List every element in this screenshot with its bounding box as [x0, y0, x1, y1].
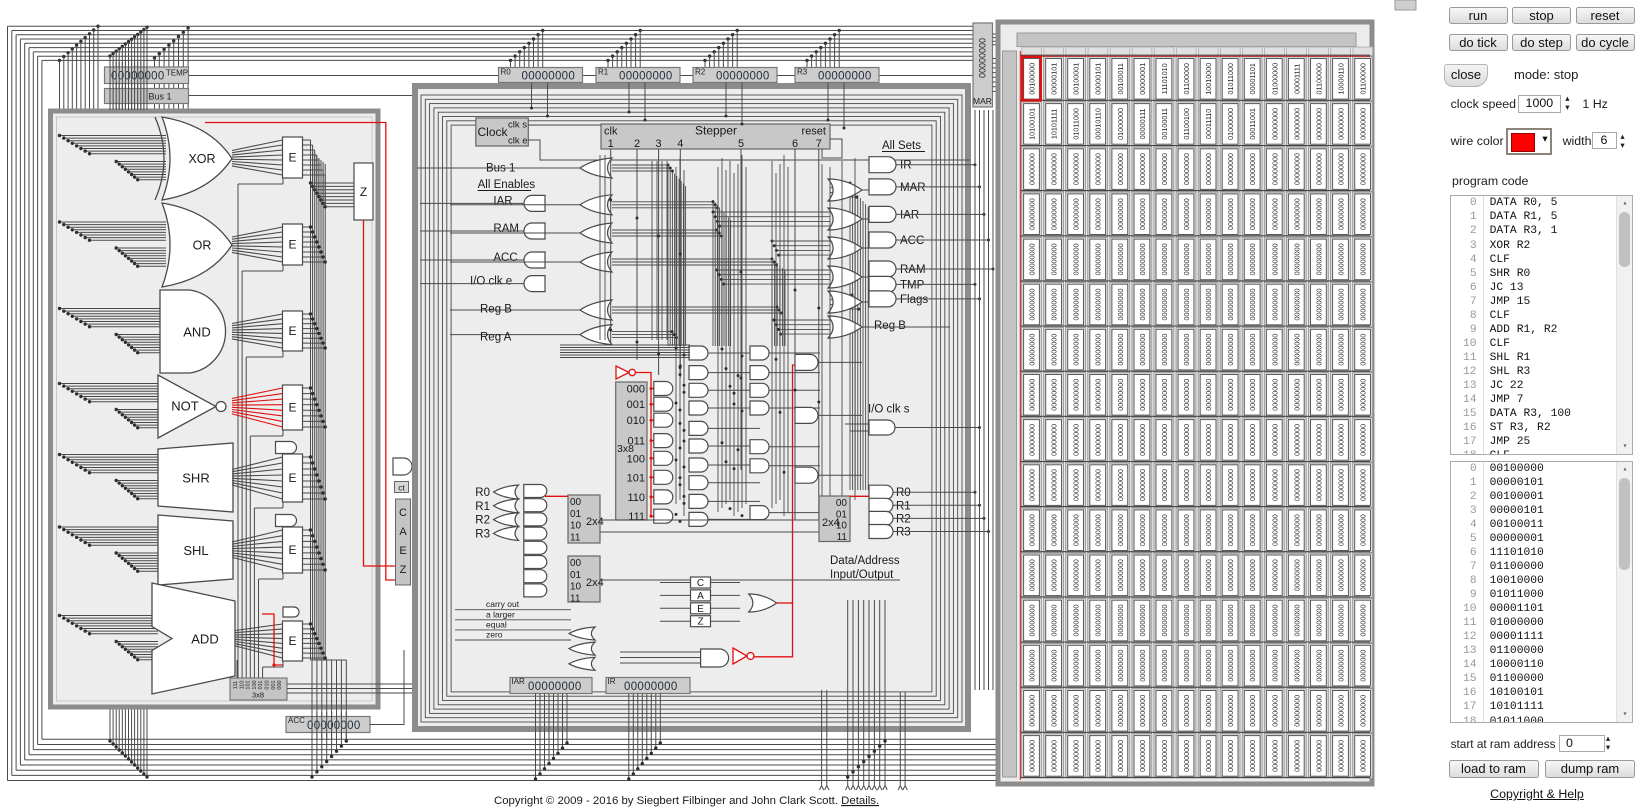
svg-text:00000000: 00000000 — [1160, 153, 1169, 185]
svg-text:Z: Z — [697, 617, 703, 628]
svg-text:00000000: 00000000 — [1160, 379, 1169, 411]
svg-text:00000000: 00000000 — [1314, 243, 1323, 275]
svg-text:00000000: 00000000 — [1094, 379, 1103, 411]
svg-text:00000000: 00000000 — [1204, 243, 1213, 275]
svg-text:00000000: 00000000 — [1314, 514, 1323, 546]
svg-text:00000000: 00000000 — [1050, 514, 1059, 546]
svg-text:00000000: 00000000 — [1248, 514, 1257, 546]
svg-text:00000000: 00000000 — [1138, 289, 1147, 321]
svg-text:00000000: 00000000 — [1226, 605, 1235, 637]
svg-text:00000000: 00000000 — [1028, 153, 1037, 185]
svg-text:10000110: 10000110 — [1337, 63, 1346, 94]
svg-text:00000000: 00000000 — [1072, 605, 1081, 637]
svg-text:00000000: 00000000 — [1204, 605, 1213, 637]
svg-text:ADD: ADD — [191, 632, 218, 647]
svg-text:00000000: 00000000 — [1226, 695, 1235, 727]
svg-text:00000000: 00000000 — [1292, 605, 1301, 637]
svg-text:00000000: 00000000 — [1094, 243, 1103, 275]
svg-text:00: 00 — [570, 558, 582, 569]
svg-text:00000000: 00000000 — [1116, 650, 1125, 682]
svg-text:00000000: 00000000 — [1292, 289, 1301, 321]
svg-text:00000000: 00000000 — [1337, 469, 1346, 501]
svg-text:Reg A: Reg A — [480, 332, 512, 344]
svg-text:00000000: 00000000 — [1337, 198, 1346, 230]
svg-text:00000000: 00000000 — [1116, 153, 1125, 185]
svg-text:R3: R3 — [475, 528, 490, 540]
svg-text:00000000: 00000000 — [1160, 243, 1169, 275]
svg-text:00000000: 00000000 — [1314, 740, 1323, 772]
svg-text:00000000: 00000000 — [1050, 559, 1059, 591]
svg-text:00000000: 00000000 — [1204, 559, 1213, 591]
svg-text:00000000: 00000000 — [1314, 695, 1323, 727]
svg-text:MAR: MAR — [900, 182, 926, 194]
svg-text:101: 101 — [246, 680, 252, 689]
svg-text:R2: R2 — [475, 515, 490, 527]
svg-text:00000000: 00000000 — [1226, 559, 1235, 591]
svg-text:00000000: 00000000 — [1182, 379, 1191, 411]
svg-text:00000000: 00000000 — [1116, 424, 1125, 456]
svg-text:00000000: 00000000 — [1116, 198, 1125, 230]
svg-text:I/O clk e: I/O clk e — [470, 276, 512, 288]
svg-text:Flags: Flags — [900, 294, 928, 306]
svg-text:01011000: 01011000 — [1072, 108, 1081, 139]
svg-text:TMP: TMP — [900, 279, 925, 291]
svg-text:00000000: 00000000 — [1182, 198, 1191, 230]
svg-text:001: 001 — [271, 680, 277, 689]
svg-text:00000000: 00000000 — [1226, 198, 1235, 230]
svg-text:100: 100 — [252, 680, 258, 689]
svg-text:00000000: 00000000 — [1292, 334, 1301, 366]
svg-text:00000000: 00000000 — [1337, 334, 1346, 366]
svg-text:00000000: 00000000 — [1028, 334, 1037, 366]
svg-text:MAR: MAR — [973, 96, 992, 106]
svg-text:10010000: 10010000 — [1204, 63, 1213, 95]
svg-text:00000000: 00000000 — [1050, 153, 1059, 185]
svg-text:00000000: 00000000 — [1314, 153, 1323, 185]
svg-text:IAR: IAR — [900, 209, 919, 221]
svg-text:00000000: 00000000 — [1337, 243, 1346, 275]
svg-text:10: 10 — [570, 582, 582, 593]
svg-text:00000000: 00000000 — [1314, 334, 1323, 366]
svg-text:00000000: 00000000 — [1314, 469, 1323, 501]
svg-text:00000000: 00000000 — [1226, 243, 1235, 275]
svg-text:00000000: 00000000 — [1359, 740, 1368, 772]
svg-text:00000000: 00000000 — [1028, 650, 1037, 682]
svg-text:00000000: 00000000 — [1226, 424, 1235, 456]
svg-text:R2: R2 — [896, 513, 911, 525]
svg-text:I/O clk s: I/O clk s — [868, 404, 910, 416]
svg-text:E: E — [288, 543, 296, 557]
svg-text:01000000: 01000000 — [1116, 108, 1125, 140]
svg-text:4: 4 — [677, 138, 683, 150]
svg-text:00000000: 00000000 — [1160, 198, 1169, 230]
svg-text:Bus 1: Bus 1 — [148, 92, 171, 102]
svg-text:00000000: 00000000 — [1050, 650, 1059, 682]
svg-text:00000000: 00000000 — [1359, 334, 1368, 366]
svg-text:00000000: 00000000 — [1226, 153, 1235, 185]
svg-text:01000000: 01000000 — [1270, 63, 1279, 95]
svg-text:00000000: 00000000 — [1028, 243, 1037, 275]
svg-text:OR: OR — [193, 239, 212, 253]
svg-text:All Sets: All Sets — [882, 140, 921, 152]
svg-text:All Enables: All Enables — [478, 179, 536, 191]
svg-text:01100000: 01100000 — [1182, 63, 1191, 94]
svg-text:3: 3 — [656, 138, 662, 150]
svg-text:00000000: 00000000 — [1028, 198, 1037, 230]
svg-text:00000000: 00000000 — [1182, 469, 1191, 501]
svg-text:R3: R3 — [896, 527, 911, 539]
svg-text:00000000: 00000000 — [1160, 334, 1169, 366]
svg-text:00000000: 00000000 — [1248, 650, 1257, 682]
svg-text:00000000: 00000000 — [1270, 424, 1279, 456]
svg-text:Stepper: Stepper — [695, 124, 737, 138]
svg-text:00000000: 00000000 — [1337, 695, 1346, 727]
svg-text:6: 6 — [792, 138, 798, 150]
svg-text:00000000: 00000000 — [1248, 424, 1257, 456]
svg-text:00000000: 00000000 — [1359, 153, 1368, 185]
svg-text:00000000: 00000000 — [1359, 605, 1368, 637]
svg-text:NOT: NOT — [171, 399, 199, 414]
svg-text:00000000: 00000000 — [1160, 740, 1169, 772]
svg-text:00000000: 00000000 — [1226, 334, 1235, 366]
svg-text:00000000: 00000000 — [1270, 695, 1279, 727]
svg-text:00000000: 00000000 — [1072, 740, 1081, 772]
svg-text:00000000: 00000000 — [1292, 514, 1301, 546]
svg-text:00000000: 00000000 — [1028, 289, 1037, 321]
svg-text:00000000: 00000000 — [1138, 424, 1147, 456]
svg-text:00000000: 00000000 — [1292, 153, 1301, 185]
svg-text:00000000: 00000000 — [716, 71, 770, 83]
svg-text:00000000: 00000000 — [1050, 469, 1059, 501]
svg-text:00000000: 00000000 — [1314, 605, 1323, 637]
svg-text:00000000: 00000000 — [1337, 379, 1346, 411]
svg-text:01000000: 01000000 — [1226, 108, 1235, 140]
svg-text:00000000: 00000000 — [1270, 243, 1279, 275]
svg-text:00000000: 00000000 — [522, 71, 576, 83]
svg-text:00000000: 00000000 — [1226, 289, 1235, 321]
svg-text:clk e: clk e — [508, 136, 528, 147]
svg-text:011: 011 — [258, 681, 264, 690]
svg-text:00000000: 00000000 — [1292, 740, 1301, 772]
svg-text:00000000: 00000000 — [1072, 379, 1081, 411]
svg-text:zero: zero — [486, 630, 503, 640]
svg-text:reset: reset — [802, 126, 826, 138]
svg-text:00000000: 00000000 — [1182, 289, 1191, 321]
svg-text:2x4: 2x4 — [586, 516, 604, 528]
svg-text:C: C — [697, 578, 704, 589]
svg-text:00000000: 00000000 — [1094, 153, 1103, 185]
svg-text:E: E — [697, 604, 704, 615]
svg-text:00000000: 00000000 — [1138, 334, 1147, 366]
svg-text:IR: IR — [900, 160, 912, 172]
svg-text:11: 11 — [837, 532, 848, 543]
svg-text:00000000: 00000000 — [1050, 289, 1059, 321]
svg-text:00000000: 00000000 — [1292, 108, 1301, 140]
svg-text:00000000: 00000000 — [1138, 243, 1147, 275]
svg-text:00000000: 00000000 — [1292, 650, 1301, 682]
svg-text:00000000: 00000000 — [1182, 153, 1191, 185]
svg-text:00000000: 00000000 — [1248, 153, 1257, 185]
svg-text:00000000: 00000000 — [1094, 514, 1103, 546]
svg-text:00000000: 00000000 — [1314, 198, 1323, 230]
svg-text:00000000: 00000000 — [1359, 289, 1368, 321]
svg-text:000: 000 — [277, 680, 283, 689]
svg-text:00000000: 00000000 — [1160, 469, 1169, 501]
svg-text:00000000: 00000000 — [1050, 605, 1059, 637]
svg-text:R1: R1 — [896, 500, 911, 512]
svg-text:XOR: XOR — [188, 152, 215, 166]
svg-text:01: 01 — [570, 509, 582, 520]
svg-text:00000000: 00000000 — [1094, 695, 1103, 727]
svg-text:00000000: 00000000 — [1116, 740, 1125, 772]
svg-text:00000000: 00000000 — [1359, 379, 1368, 411]
svg-text:00010110: 00010110 — [1094, 108, 1103, 139]
svg-text:00000000: 00000000 — [1270, 650, 1279, 682]
svg-text:00000000: 00000000 — [1226, 379, 1235, 411]
svg-text:00000000: 00000000 — [1270, 559, 1279, 591]
svg-text:00000000: 00000000 — [1072, 650, 1081, 682]
svg-text:00000000: 00000000 — [1270, 153, 1279, 185]
svg-text:00000000: 00000000 — [1314, 379, 1323, 411]
svg-text:01100100: 01100100 — [1182, 108, 1191, 139]
svg-text:Z: Z — [400, 564, 407, 576]
svg-text:00011001: 00011001 — [1248, 108, 1257, 139]
svg-text:3x8: 3x8 — [252, 691, 264, 700]
svg-text:00000000: 00000000 — [1359, 650, 1368, 682]
svg-text:00000000: 00000000 — [1182, 424, 1191, 456]
svg-text:00100000: 00100000 — [1028, 63, 1037, 95]
svg-text:RAM: RAM — [900, 264, 926, 276]
svg-text:00000000: 00000000 — [1292, 379, 1301, 411]
svg-text:equal: equal — [486, 619, 507, 629]
svg-text:011: 011 — [627, 436, 645, 448]
svg-text:001: 001 — [627, 399, 645, 411]
svg-text:00000000: 00000000 — [1116, 559, 1125, 591]
svg-text:00000000: 00000000 — [1072, 198, 1081, 230]
svg-text:00000000: 00000000 — [1226, 514, 1235, 546]
svg-text:2x4: 2x4 — [586, 577, 604, 589]
svg-text:00000000: 00000000 — [1270, 514, 1279, 546]
svg-text:01: 01 — [570, 570, 582, 581]
svg-text:00000000: 00000000 — [1204, 424, 1213, 456]
svg-text:00000000: 00000000 — [1314, 424, 1323, 456]
svg-text:ct: ct — [398, 483, 405, 493]
svg-text:R0: R0 — [475, 487, 490, 499]
svg-text:00000000: 00000000 — [1337, 650, 1346, 682]
svg-text:00000000: 00000000 — [1050, 379, 1059, 411]
svg-text:00000000: 00000000 — [1182, 243, 1191, 275]
svg-text:00000000: 00000000 — [1314, 108, 1323, 140]
svg-text:00000001: 00000001 — [1138, 63, 1147, 95]
svg-text:E: E — [288, 471, 296, 485]
svg-text:00000000: 00000000 — [1138, 469, 1147, 501]
svg-text:00001101: 00001101 — [1248, 63, 1257, 94]
svg-text:00000000: 00000000 — [1116, 379, 1125, 411]
svg-text:11: 11 — [570, 532, 581, 543]
svg-text:00000000: 00000000 — [1292, 559, 1301, 591]
svg-text:00000000: 00000000 — [1028, 605, 1037, 637]
svg-text:00000000: 00000000 — [1248, 198, 1257, 230]
svg-text:00000000: 00000000 — [1204, 469, 1213, 501]
svg-text:00000000: 00000000 — [1072, 334, 1081, 366]
svg-text:00000000: 00000000 — [1204, 379, 1213, 411]
svg-text:00: 00 — [570, 497, 582, 508]
svg-text:00000000: 00000000 — [1116, 289, 1125, 321]
svg-text:10: 10 — [836, 521, 848, 532]
svg-text:00000000: 00000000 — [1270, 469, 1279, 501]
svg-text:00000000: 00000000 — [818, 71, 872, 83]
svg-text:00000000: 00000000 — [1204, 198, 1213, 230]
svg-text:00000000: 00000000 — [1094, 650, 1103, 682]
svg-text:00000000: 00000000 — [1182, 695, 1191, 727]
svg-text:00000000: 00000000 — [1359, 469, 1368, 501]
svg-text:00001111: 00001111 — [1292, 64, 1301, 94]
svg-text:00000000: 00000000 — [1138, 695, 1147, 727]
svg-text:111: 111 — [233, 681, 239, 689]
svg-text:11101010: 11101010 — [1160, 63, 1169, 94]
svg-text:00000000: 00000000 — [1182, 559, 1191, 591]
svg-text:00000000: 00000000 — [1359, 559, 1368, 591]
svg-text:00000000: 00000000 — [1160, 650, 1169, 682]
svg-text:IAR: IAR — [493, 195, 512, 207]
svg-text:Copyright © 2009 - 2016 by Sie: Copyright © 2009 - 2016 by Siegbert Filb… — [494, 795, 879, 807]
svg-text:00100011: 00100011 — [1116, 63, 1125, 94]
svg-text:ACC: ACC — [900, 235, 924, 247]
svg-text:Clock: Clock — [478, 125, 509, 139]
svg-text:00000000: 00000000 — [1160, 424, 1169, 456]
svg-text:00000000: 00000000 — [1138, 650, 1147, 682]
svg-text:00000000: 00000000 — [1138, 514, 1147, 546]
svg-text:00000000: 00000000 — [1160, 695, 1169, 727]
svg-text:00000000: 00000000 — [1116, 243, 1125, 275]
svg-text:00000000: 00000000 — [1270, 379, 1279, 411]
svg-text:E: E — [399, 545, 406, 557]
svg-text:00000000: 00000000 — [1094, 198, 1103, 230]
svg-text:00000000: 00000000 — [1337, 740, 1346, 772]
svg-text:00000000: 00000000 — [1204, 695, 1213, 727]
svg-text:00000000: 00000000 — [624, 681, 678, 693]
svg-text:00000000: 00000000 — [1359, 424, 1368, 456]
svg-text:110: 110 — [239, 681, 245, 690]
svg-text:00000000: 00000000 — [1248, 605, 1257, 637]
svg-text:00000000: 00000000 — [1270, 108, 1279, 140]
svg-text:00000000: 00000000 — [1359, 243, 1368, 275]
svg-text:IAR: IAR — [512, 677, 526, 686]
svg-text:Input/Output: Input/Output — [830, 569, 894, 581]
svg-text:00000000: 00000000 — [307, 720, 361, 732]
svg-text:00000000: 00000000 — [528, 681, 582, 693]
svg-text:00000000: 00000000 — [1050, 424, 1059, 456]
svg-text:Reg B: Reg B — [874, 320, 906, 332]
svg-text:00000000: 00000000 — [619, 71, 673, 83]
svg-text:00000000: 00000000 — [1204, 650, 1213, 682]
svg-text:00000000: 00000000 — [1248, 379, 1257, 411]
svg-text:00000000: 00000000 — [1028, 424, 1037, 456]
svg-text:00000000: 00000000 — [1270, 289, 1279, 321]
svg-text:00000000: 00000000 — [1160, 605, 1169, 637]
svg-text:00000000: 00000000 — [1072, 424, 1081, 456]
svg-text:IR: IR — [608, 677, 616, 686]
svg-text:carry out: carry out — [486, 599, 520, 609]
svg-text:00000000: 00000000 — [1226, 650, 1235, 682]
svg-text:00000000: 00000000 — [1072, 289, 1081, 321]
svg-text:00000000: 00000000 — [1050, 198, 1059, 230]
svg-text:00000000: 00000000 — [1204, 740, 1213, 772]
svg-text:R0: R0 — [896, 487, 911, 499]
svg-text:Reg B: Reg B — [480, 304, 512, 316]
svg-text:00000000: 00000000 — [1182, 740, 1191, 772]
svg-text:110: 110 — [627, 492, 645, 504]
svg-text:00000000: 00000000 — [1138, 198, 1147, 230]
svg-text:00100001: 00100001 — [1072, 63, 1081, 95]
svg-text:00000000: 00000000 — [1094, 289, 1103, 321]
svg-text:00000000: 00000000 — [1072, 695, 1081, 727]
svg-text:TEMP: TEMP — [166, 69, 188, 78]
svg-text:100: 100 — [627, 453, 645, 465]
svg-text:00000000: 00000000 — [1248, 289, 1257, 321]
svg-text:00000000: 00000000 — [1028, 559, 1037, 591]
svg-text:00000000: 00000000 — [1182, 605, 1191, 637]
svg-text:R3: R3 — [797, 68, 808, 77]
svg-text:a larger: a larger — [486, 609, 515, 619]
svg-text:111: 111 — [628, 511, 645, 523]
svg-text:00000000: 00000000 — [1160, 289, 1169, 321]
svg-text:00000000: 00000000 — [1270, 198, 1279, 230]
svg-text:R1: R1 — [598, 68, 609, 77]
svg-text:00000000: 00000000 — [1094, 334, 1103, 366]
svg-text:AND: AND — [183, 325, 210, 340]
svg-text:00000000: 00000000 — [1028, 695, 1037, 727]
svg-text:00000000: 00000000 — [1116, 514, 1125, 546]
svg-text:00000000: 00000000 — [1359, 108, 1368, 140]
svg-text:00000000: 00000000 — [1292, 695, 1301, 727]
svg-text:00000000: 00000000 — [1337, 559, 1346, 591]
svg-text:11: 11 — [570, 593, 581, 604]
svg-text:00000000: 00000000 — [1094, 424, 1103, 456]
svg-text:00000000: 00000000 — [1116, 605, 1125, 637]
svg-text:00000000: 00000000 — [1337, 605, 1346, 637]
svg-text:00000000: 00000000 — [1248, 695, 1257, 727]
svg-text:00000000: 00000000 — [1204, 514, 1213, 546]
svg-text:E: E — [288, 324, 296, 338]
svg-text:00000000: 00000000 — [1116, 334, 1125, 366]
svg-text:SHR: SHR — [182, 471, 209, 486]
svg-text:00000000: 00000000 — [1359, 198, 1368, 230]
svg-text:00000000: 00000000 — [1028, 740, 1037, 772]
svg-text:00000000: 00000000 — [1292, 243, 1301, 275]
svg-text:00000000: 00000000 — [1094, 605, 1103, 637]
svg-text:E: E — [288, 634, 296, 648]
svg-text:00000000: 00000000 — [1138, 740, 1147, 772]
svg-text:00000000: 00000000 — [1050, 243, 1059, 275]
svg-text:00000000: 00000000 — [1116, 695, 1125, 727]
svg-text:00000101: 00000101 — [1050, 63, 1059, 95]
svg-text:00000000: 00000000 — [1094, 740, 1103, 772]
svg-text:01100000: 01100000 — [1314, 63, 1323, 94]
svg-text:5: 5 — [738, 138, 744, 150]
svg-text:10: 10 — [570, 521, 582, 532]
svg-text:00000000: 00000000 — [1248, 559, 1257, 591]
svg-text:00000000: 00000000 — [1292, 469, 1301, 501]
svg-text:R0: R0 — [501, 68, 512, 77]
svg-text:00000000: 00000000 — [1226, 740, 1235, 772]
svg-text:00000000: 00000000 — [1248, 469, 1257, 501]
svg-text:00000000: 00000000 — [1204, 153, 1213, 185]
svg-text:00000000: 00000000 — [1116, 469, 1125, 501]
svg-text:00000000: 00000000 — [1314, 559, 1323, 591]
svg-text:00000000: 00000000 — [1160, 559, 1169, 591]
svg-text:00000000: 00000000 — [1314, 650, 1323, 682]
